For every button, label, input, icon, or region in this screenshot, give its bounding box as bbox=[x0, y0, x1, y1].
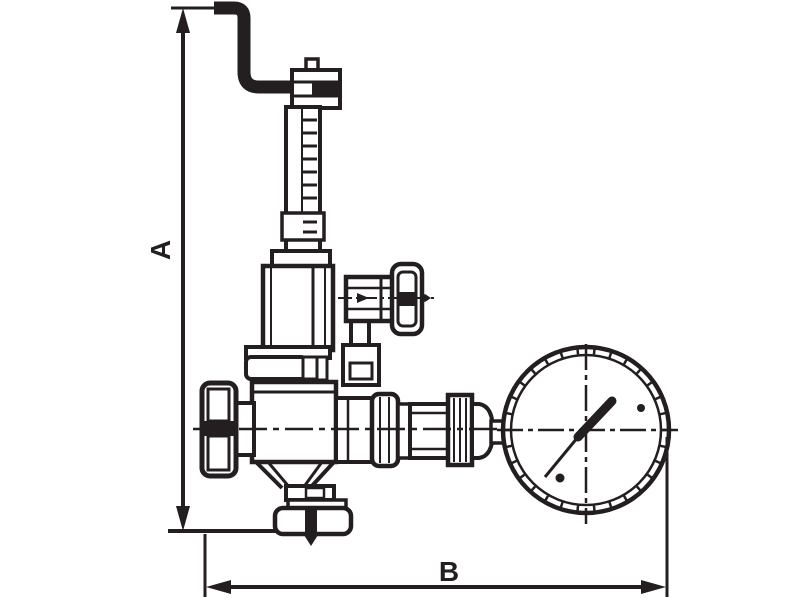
technical-drawing-canvas: A B bbox=[0, 0, 800, 598]
dial-screw-dot bbox=[637, 404, 645, 412]
arrow-left-icon bbox=[206, 580, 231, 594]
side-test-cock bbox=[338, 264, 436, 385]
valve-dimensional-drawing: A B bbox=[0, 0, 800, 598]
bottom-outlet-flange bbox=[275, 508, 351, 534]
spring-bonnet bbox=[246, 266, 333, 380]
thread-ticks bbox=[303, 120, 317, 198]
arrow-up-icon bbox=[176, 8, 190, 33]
arrow-right-icon bbox=[641, 580, 666, 594]
pressure-gauge bbox=[497, 344, 678, 524]
arrow-down-icon bbox=[176, 506, 190, 531]
threaded-adjustment-stem bbox=[272, 107, 330, 267]
valve-cap bbox=[292, 59, 340, 108]
bottom-outlet bbox=[256, 462, 351, 546]
overflow-pipe bbox=[214, 8, 294, 87]
dimension-a-label: A bbox=[145, 240, 176, 260]
dimension-b-label: B bbox=[439, 556, 459, 587]
outlet-tip bbox=[304, 535, 318, 546]
